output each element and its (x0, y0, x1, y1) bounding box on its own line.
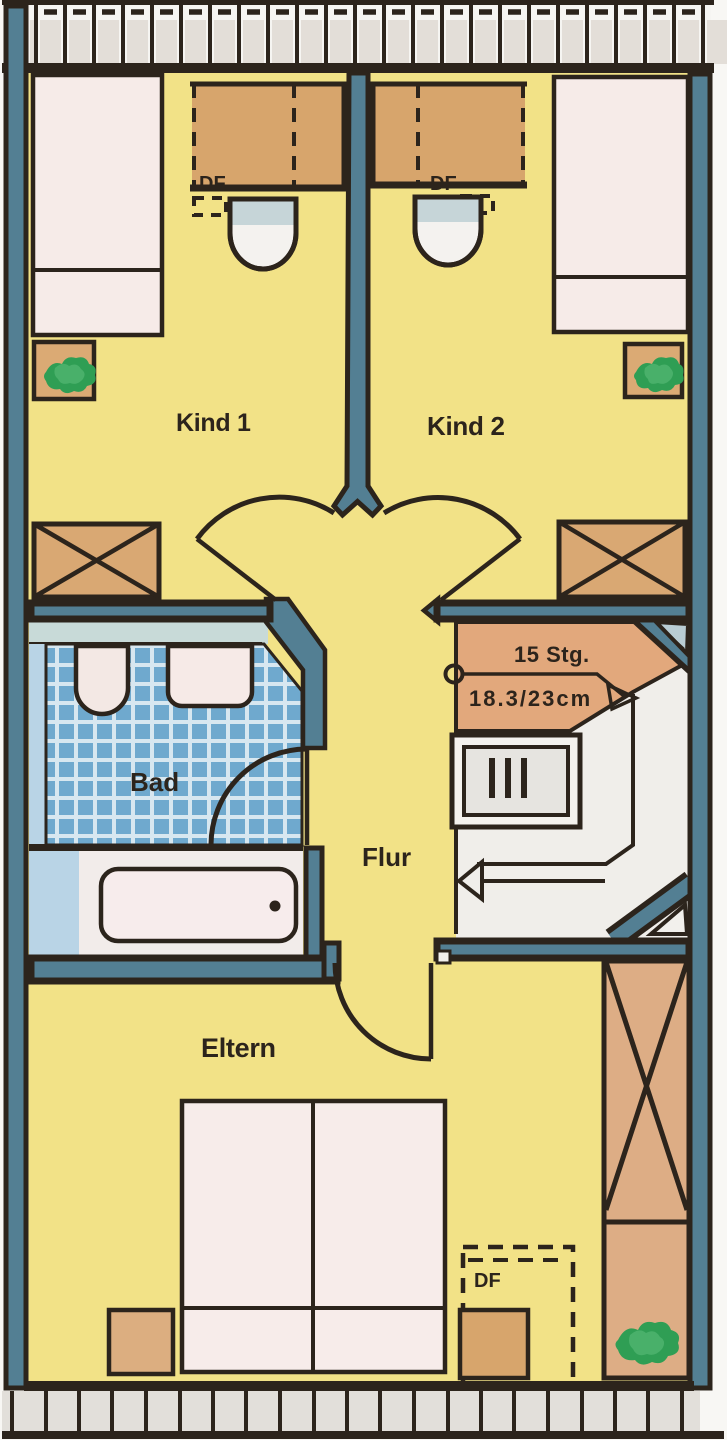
svg-text:DF: DF (430, 173, 457, 195)
svg-text:DF: DF (199, 173, 226, 195)
svg-text:Flur: Flur (362, 842, 411, 872)
svg-text:Kind 1: Kind 1 (176, 409, 251, 437)
svg-text:Kind 2: Kind 2 (427, 411, 505, 441)
svg-text:18.3/23cm: 18.3/23cm (469, 686, 592, 711)
svg-text:15 Stg.: 15 Stg. (514, 642, 590, 667)
svg-text:DF: DF (474, 1270, 501, 1292)
svg-text:Eltern: Eltern (201, 1033, 276, 1063)
svg-text:Bad: Bad (130, 767, 179, 797)
